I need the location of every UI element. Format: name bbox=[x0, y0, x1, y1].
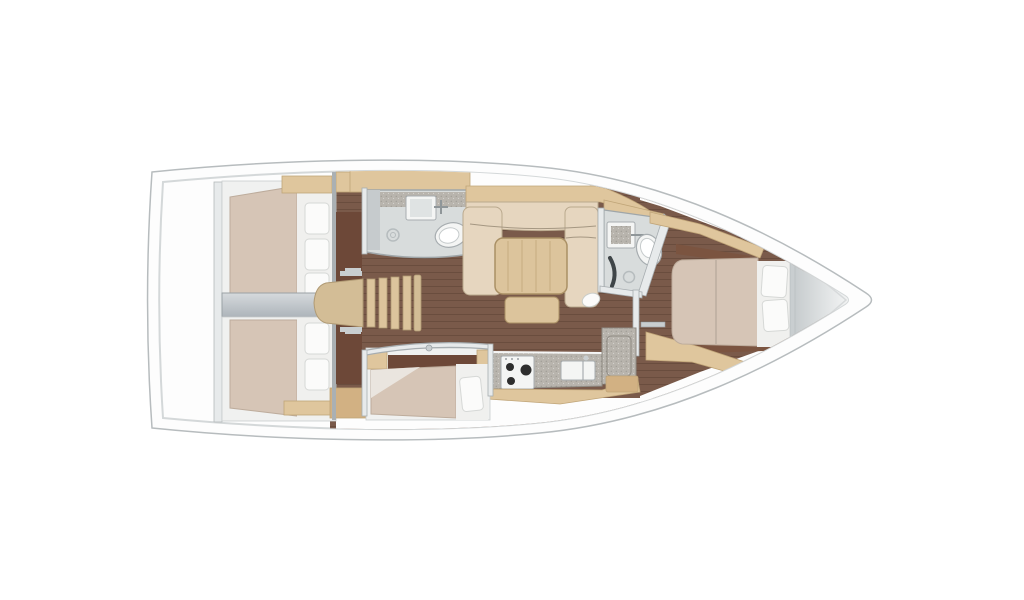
aft-bulkhead-wall bbox=[332, 172, 336, 296]
stove-knob bbox=[511, 358, 513, 360]
stove-knob bbox=[517, 358, 519, 360]
counter-lip bbox=[490, 352, 602, 353]
salon-bench bbox=[505, 297, 559, 323]
stove-burner bbox=[521, 365, 532, 376]
sink-basin bbox=[410, 199, 432, 217]
stair-base bbox=[314, 279, 363, 327]
stove-burner bbox=[506, 363, 514, 371]
stove-knob bbox=[505, 358, 507, 360]
cabinet bbox=[606, 376, 638, 392]
galley-faucet bbox=[584, 356, 589, 361]
bathroom-wall bbox=[362, 188, 367, 254]
pillow bbox=[761, 265, 788, 298]
stove-burner bbox=[507, 377, 515, 385]
pillow bbox=[762, 299, 789, 332]
stair-rung bbox=[391, 277, 399, 329]
transom-wall bbox=[214, 182, 222, 422]
galley-sink bbox=[561, 361, 595, 380]
sink-basin bbox=[611, 226, 631, 244]
pillow bbox=[305, 239, 329, 270]
bunk-cabin bbox=[362, 344, 493, 420]
mattress bbox=[672, 258, 758, 346]
yacht-floor-plan bbox=[0, 0, 1024, 600]
stair-rung bbox=[367, 279, 375, 327]
pillow bbox=[305, 323, 329, 354]
cabin-wall bbox=[488, 344, 493, 396]
floor-plan-canvas bbox=[0, 0, 1024, 600]
aft-bulkhead-wall bbox=[332, 316, 336, 420]
cabin-wall bbox=[362, 350, 367, 416]
hatch-knob bbox=[426, 345, 432, 351]
cabinet bbox=[350, 170, 470, 192]
pillow bbox=[459, 376, 483, 412]
salon-table bbox=[495, 238, 567, 294]
aft-cabin-starboard bbox=[222, 317, 372, 421]
cabinet bbox=[284, 401, 332, 415]
stair-rung bbox=[379, 278, 387, 328]
door-handle bbox=[641, 322, 665, 327]
stair-rung bbox=[414, 275, 421, 331]
pillow bbox=[305, 203, 329, 234]
bed-head-rail bbox=[790, 258, 795, 346]
pillow bbox=[305, 359, 329, 390]
sofa-seat-right bbox=[565, 207, 598, 307]
stair-cleat bbox=[340, 327, 362, 332]
vanity-counter-side bbox=[366, 190, 380, 250]
mattress bbox=[230, 186, 297, 298]
stair-cleat bbox=[340, 271, 362, 276]
head-midship bbox=[350, 170, 471, 258]
cabinet bbox=[282, 176, 332, 193]
stair-rung bbox=[403, 276, 411, 330]
bathroom-wall bbox=[598, 208, 604, 292]
